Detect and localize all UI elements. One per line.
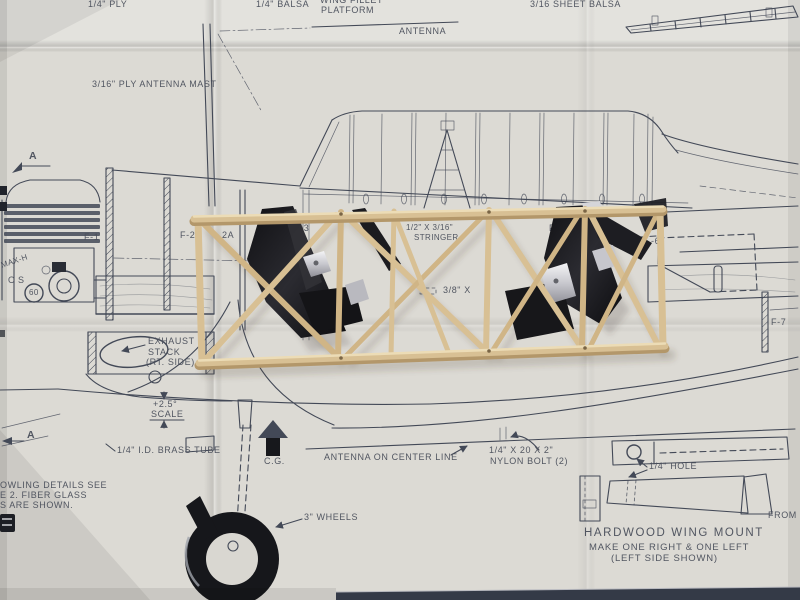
balsa-frame-model: [0, 0, 800, 600]
photo-model-airplane-plan: 1/4" PLY 1/4" BALSA WING FILLET PLATFORM…: [0, 0, 800, 600]
